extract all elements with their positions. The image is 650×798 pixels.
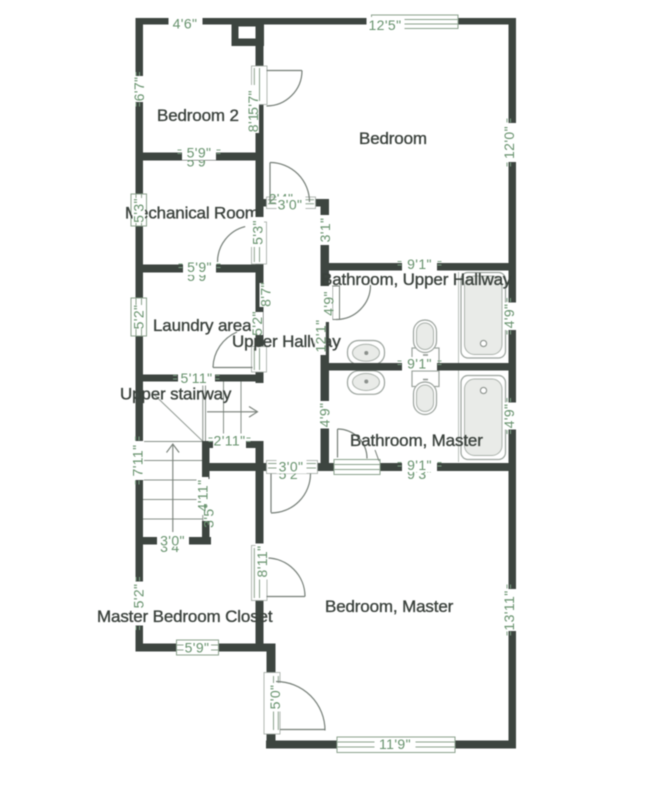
svg-text:Bathroom, Master: Bathroom, Master (350, 431, 483, 450)
svg-text:13'11": 13'11" (501, 590, 517, 630)
svg-text:7'11": 7'11" (130, 445, 146, 477)
svg-text:9'1": 9'1" (407, 256, 432, 272)
svg-text:4'9": 4'9" (317, 403, 333, 428)
svg-text:Bedroom 2: Bedroom 2 (157, 106, 239, 125)
svg-text:5'11": 5'11" (181, 370, 213, 386)
svg-text:Bedroom: Bedroom (359, 129, 427, 148)
svg-text:5'2": 5'2" (131, 305, 147, 330)
svg-text:12'5": 12'5" (368, 17, 401, 33)
svg-text:Upper stairway: Upper stairway (120, 385, 232, 404)
svg-text:5'7": 5'7" (245, 90, 261, 115)
svg-text:Master Bedroom Closet: Master Bedroom Closet (97, 607, 273, 626)
svg-text:4'6": 4'6" (173, 16, 198, 32)
svg-text:5'9": 5'9" (187, 145, 212, 161)
svg-text:5'3": 5'3" (131, 198, 147, 223)
svg-text:5'2": 5'2" (131, 584, 147, 609)
svg-text:3'0": 3'0" (279, 458, 304, 474)
svg-text:5'9": 5'9" (187, 259, 212, 275)
svg-text:3'5": 3'5" (201, 503, 217, 528)
svg-text:3'0": 3'0" (160, 532, 185, 548)
svg-text:11'9": 11'9" (379, 736, 411, 752)
svg-text:12'0": 12'0" (501, 126, 517, 159)
svg-text:12'1": 12'1" (312, 319, 328, 352)
svg-text:8'7": 8'7" (257, 282, 273, 307)
svg-text:6'7": 6'7" (131, 77, 147, 102)
svg-text:4'9": 4'9" (501, 304, 517, 329)
svg-text:3'1": 3'1" (317, 218, 333, 243)
svg-text:9'1": 9'1" (407, 356, 432, 372)
svg-text:8'1: 8'1 (245, 113, 261, 132)
svg-text:Bedroom, Master: Bedroom, Master (325, 597, 454, 616)
svg-text:Bathroom, Upper Hallway: Bathroom, Upper Hallway (321, 270, 512, 289)
svg-text:2'11": 2'11" (214, 432, 246, 448)
svg-text:4'9": 4'9" (501, 404, 517, 429)
svg-text:9'1": 9'1" (407, 457, 432, 473)
svg-text:5'9": 5'9" (185, 640, 210, 656)
svg-text:5'3": 5'3" (250, 220, 266, 245)
svg-text:5'2": 5'2" (249, 311, 265, 336)
svg-text:4'9": 4'9" (321, 291, 337, 316)
svg-text:5'0": 5'0" (267, 685, 283, 710)
svg-text:3'0": 3'0" (278, 197, 303, 213)
svg-text:8'11": 8'11" (254, 546, 270, 578)
